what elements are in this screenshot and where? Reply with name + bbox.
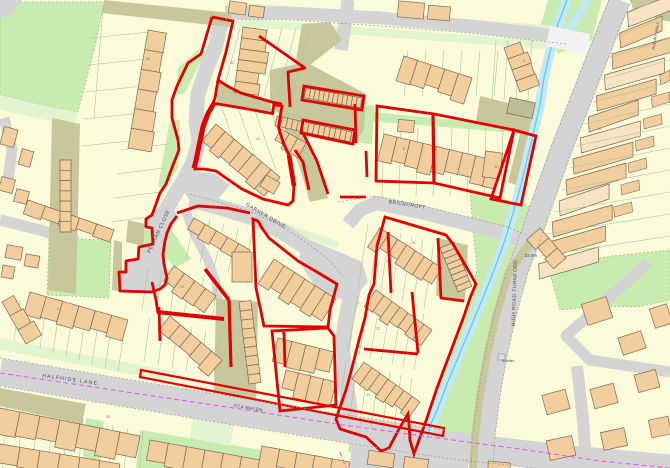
svg-text:23: 23 [366,393,370,397]
svg-text:41: 41 [412,241,416,245]
svg-text:45: 45 [146,57,150,61]
svg-text:22: 22 [376,327,380,331]
svg-text:Shelter: Shelter [502,358,515,363]
svg-text:38: 38 [106,415,110,419]
svg-text:52: 52 [598,127,602,131]
svg-text:17: 17 [56,307,60,311]
svg-text:11: 11 [402,147,406,151]
svg-text:8: 8 [523,59,525,63]
svg-text:23.8m: 23.8m [525,253,538,258]
svg-text:9: 9 [309,373,311,377]
svg-text:32: 32 [230,61,234,65]
svg-text:16: 16 [494,165,498,169]
svg-text:19: 19 [180,285,184,289]
svg-text:24: 24 [256,137,260,141]
